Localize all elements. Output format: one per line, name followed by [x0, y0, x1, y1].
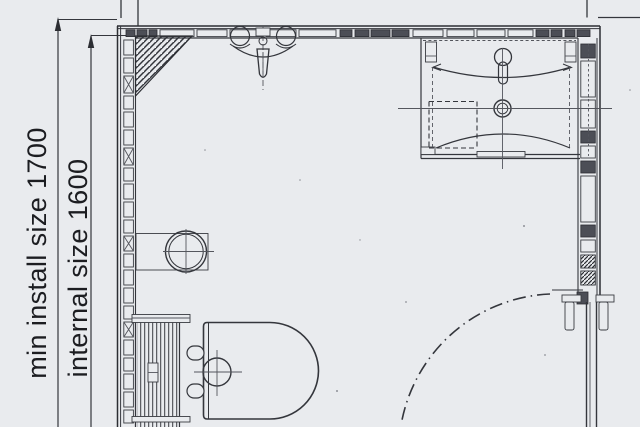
floor-plan-page: min install size 1700 internal size 1600 [0, 0, 640, 427]
door-leaf [587, 302, 597, 427]
basin-right-bracket [565, 42, 576, 62]
floor-plan-svg: min install size 1700 internal size 1600 [0, 0, 640, 427]
washbasin-unit [398, 38, 612, 169]
left-wall [118, 26, 136, 427]
cistern [132, 315, 190, 427]
seat-hinge-top [187, 346, 204, 360]
basin-back-curve [436, 134, 570, 148]
label-internal-size: internal size 1600 [63, 159, 93, 378]
door-swing-arc [402, 294, 550, 420]
mixer-escutcheon [256, 28, 270, 36]
floor-drain [136, 229, 214, 274]
seat-hinge-bottom [187, 384, 204, 398]
top-wall-panels [126, 30, 590, 37]
toilet-pan [187, 323, 319, 420]
right-wall [578, 26, 600, 300]
left-wall-studs [124, 40, 134, 423]
basin-left-bracket [426, 42, 437, 62]
basin-front-curve [433, 67, 571, 78]
adjoining-wall-stubs [121, 0, 640, 26]
toilet [132, 315, 319, 427]
dimension-annotations: min install size 1700 internal size 1600 [22, 17, 132, 427]
door [402, 290, 614, 427]
corner-shelf-hatch [136, 36, 193, 96]
basin-tap [495, 49, 512, 85]
label-min-install-size: min install size 1700 [22, 127, 52, 379]
basin-shelf-detail [477, 152, 525, 158]
